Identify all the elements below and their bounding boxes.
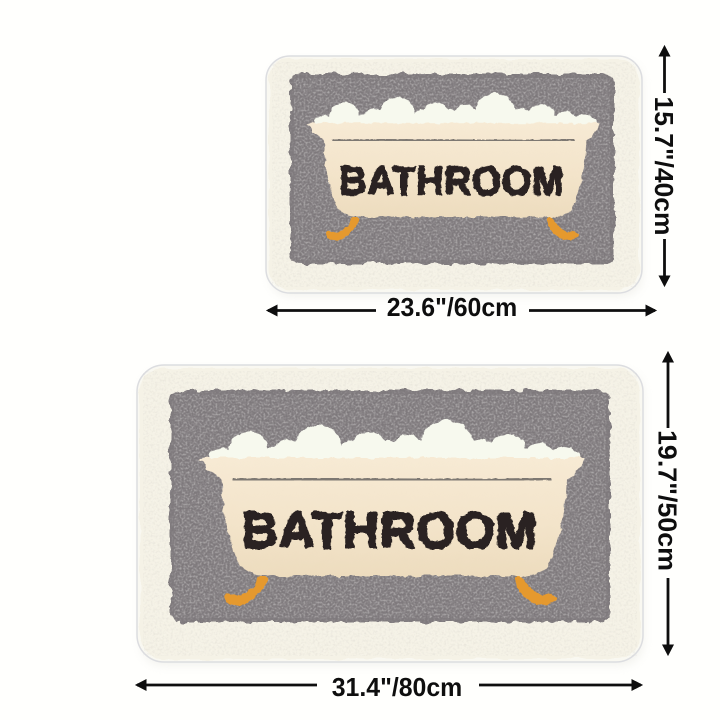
svg-text:15.7"/40cm: 15.7"/40cm (649, 97, 679, 236)
svg-text:31.4"/80cm: 31.4"/80cm (332, 672, 463, 702)
svg-text:19.7"/50cm: 19.7"/50cm (653, 430, 683, 571)
svg-text:23.6"/60cm: 23.6"/60cm (387, 292, 518, 322)
